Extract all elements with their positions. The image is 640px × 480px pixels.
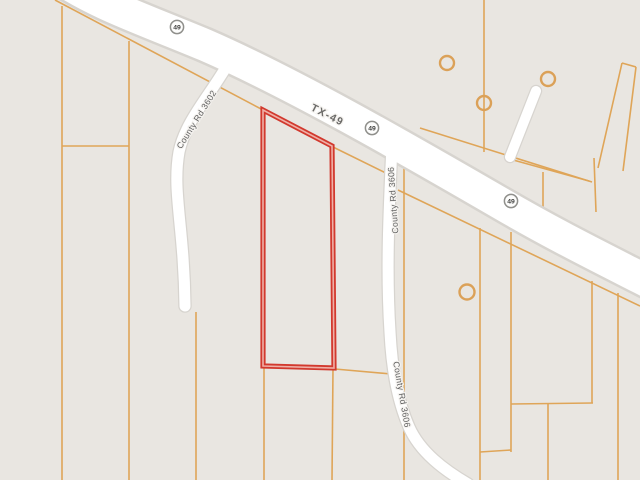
parcel-line [332,368,333,480]
county-rd-3602-label: County Rd 3602 [174,88,218,150]
parcel-line [598,63,622,168]
map-svg: 49 49 49 TX-49 County Rd 3602 County Rd … [0,0,640,480]
road-fills [56,0,640,480]
parcel-line [623,67,636,171]
county-rd-3602-road [177,50,236,306]
subject-parcel-outer [263,110,334,368]
circle-marker [440,56,454,70]
parcel-line [511,403,593,404]
shield-number: 49 [173,25,181,32]
tx49-shield-icon: 49 [170,20,183,33]
subject-parcel-outline [263,110,334,368]
parcel-line [506,158,589,181]
tx49-shield-icon: 49 [504,194,517,207]
parcel-line [594,158,596,212]
parcel-line [335,369,391,374]
tx49-shield-icon: 49 [365,121,378,134]
stub-road [510,91,536,157]
circle-marker [460,285,475,300]
shield-number: 49 [368,126,376,133]
parcel-line [480,450,511,452]
shield-number: 49 [507,199,515,206]
map-canvas[interactable]: 49 49 49 TX-49 County Rd 3602 County Rd … [0,0,640,480]
parcel-line [622,63,636,67]
subject-parcel-inner [263,110,334,368]
highway-tx49-road [56,0,640,292]
circle-marker [541,72,555,86]
